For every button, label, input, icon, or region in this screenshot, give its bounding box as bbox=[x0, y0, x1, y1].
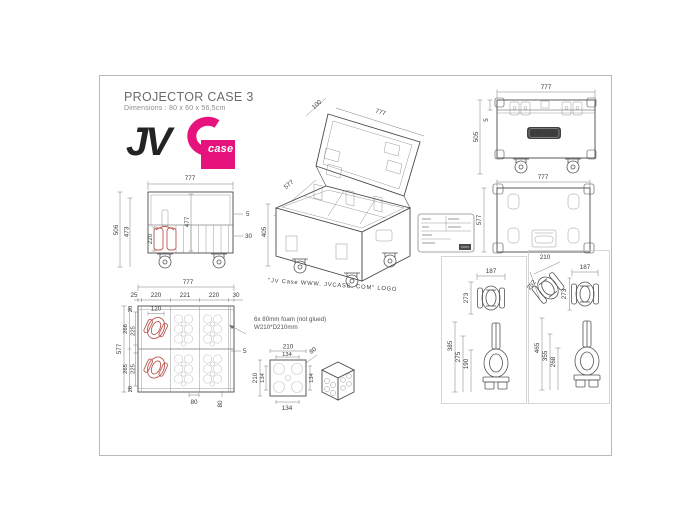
dim-detr-bh: 273 bbox=[561, 288, 568, 299]
dim-iso-width: 777 bbox=[374, 108, 387, 118]
dim-detl-s2: 190 bbox=[463, 358, 470, 369]
dim-detr-s1: 355 bbox=[542, 350, 549, 361]
dim-front-width: 777 bbox=[185, 175, 196, 182]
dim-foam-th: 80 bbox=[308, 346, 318, 356]
page: { "title": "PROJECTOR CASE 3", "subtitle… bbox=[0, 0, 700, 525]
closed-front-view: 777 BRITEQ 505 5 bbox=[468, 80, 613, 180]
dim-interior-c3: 220 bbox=[209, 292, 220, 299]
front-section-view: 777 506 473 477 220 5 30 bbox=[110, 170, 260, 280]
moving-head-side-icon bbox=[574, 321, 600, 387]
moving-head-side-icon bbox=[483, 323, 509, 389]
dim-detr-bw: 187 bbox=[580, 264, 591, 271]
dim-front-fixture: 220 bbox=[147, 233, 154, 244]
foam-note-line2: W210*D210mm bbox=[254, 324, 298, 331]
dim-interior-c2: 221 bbox=[180, 292, 191, 299]
dim-interior-b1: 80 bbox=[217, 400, 224, 408]
dim-interior-r3: 265 bbox=[123, 364, 129, 374]
dim-interior-c0: 25 bbox=[130, 292, 138, 299]
fixture-detail-right: 210 252 187 273 465 355 268 bbox=[528, 250, 610, 404]
case-label-detail bbox=[415, 208, 479, 258]
dim-interior-r5: 20 bbox=[128, 386, 134, 392]
case-top-view: 777 577 bbox=[468, 170, 613, 262]
foam-block-detail: 6x 80mm foam (not glued) W210*D210mm 210… bbox=[248, 312, 368, 418]
dim-interior-width: 777 bbox=[183, 279, 194, 286]
dim-front-h-outer: 506 bbox=[113, 224, 120, 235]
moving-head-top-tilted-icon bbox=[530, 270, 566, 306]
dim-foam-wi: 134 bbox=[282, 352, 292, 358]
fixture-detail-left: 187 273 385 275 190 bbox=[441, 256, 527, 404]
dim-foam-w: 210 bbox=[283, 344, 294, 351]
dim-front-strip: 30 bbox=[245, 233, 253, 240]
logo-case-box: case bbox=[201, 140, 235, 169]
dim-foam-bottom: 134 bbox=[282, 405, 293, 412]
dim-interior-depth: 577 bbox=[116, 343, 123, 354]
dim-detr-aw: 210 bbox=[540, 254, 551, 261]
dim-interior-r2: 225 bbox=[131, 326, 137, 336]
dim-interior-c4: 30 bbox=[232, 292, 240, 299]
dim-interior-r0: 20 bbox=[128, 306, 134, 312]
dim-detl-s1: 275 bbox=[455, 351, 462, 362]
case-body-drawing bbox=[276, 184, 410, 287]
logo-case-text: case bbox=[201, 140, 235, 155]
dim-front-h-inner: 473 bbox=[124, 226, 131, 237]
iso-caption: "JV Case WWW. JVCASE. COM" LOGO bbox=[268, 278, 398, 293]
dim-detl-s0: 385 bbox=[447, 340, 454, 351]
dim-interior-r1: 266 bbox=[123, 324, 129, 334]
foam-note-line1: 6x 80mm foam (not glued) bbox=[254, 316, 326, 323]
moving-head-top-icon bbox=[478, 286, 505, 310]
logo-jv-text: JV bbox=[126, 122, 169, 162]
dim-detl-w: 187 bbox=[486, 268, 497, 275]
dim-front-cavity: 477 bbox=[184, 216, 191, 227]
dim-foam-di: 134 bbox=[260, 372, 266, 382]
dim-foam-d: 210 bbox=[252, 372, 259, 383]
dim-iso-depth: 577 bbox=[283, 178, 296, 190]
dim-foam-side: 134 bbox=[309, 372, 315, 382]
dim-interior-cutout: 120 bbox=[151, 306, 162, 313]
dim-interior-wall: 5 bbox=[243, 348, 247, 355]
page-title: PROJECTOR CASE 3 bbox=[124, 90, 254, 104]
brand-plate: BRITEQ bbox=[527, 127, 561, 139]
dim-detr-s2: 268 bbox=[550, 356, 557, 367]
jv-case-logo: JV case bbox=[126, 116, 246, 174]
dim-detl-h: 273 bbox=[463, 292, 470, 303]
page-subtitle: Dimensions : 80 x 60 x 56,5cm bbox=[124, 105, 226, 112]
moving-head-top-icon bbox=[572, 282, 599, 306]
dim-closed-height: 505 bbox=[473, 131, 480, 142]
dim-iso-lid: 100 bbox=[311, 98, 324, 111]
dim-interior-b0: 80 bbox=[190, 399, 198, 406]
dim-iso-height: 405 bbox=[261, 226, 268, 237]
dim-closed-lid: 5 bbox=[483, 118, 490, 122]
brand-plate-text: BRITEQ bbox=[531, 130, 557, 137]
dim-interior-r4: 225 bbox=[131, 364, 137, 374]
dim-detr-s0: 465 bbox=[534, 342, 541, 353]
dim-front-lid: 5 bbox=[246, 211, 250, 218]
interior-top-view: 777 25 220 221 220 30 577 20 266 225 265… bbox=[110, 276, 270, 412]
caster-icon bbox=[157, 254, 173, 268]
dim-interior-c1: 220 bbox=[151, 292, 162, 299]
foam-block-3d bbox=[322, 362, 354, 400]
isometric-open-case-view: 100 777 577 405 "JV Case WWW. JVCASE. CO… bbox=[258, 84, 443, 294]
caster-icon bbox=[211, 254, 227, 268]
dim-closed-width: 777 bbox=[541, 84, 552, 91]
dim-top-width: 777 bbox=[538, 174, 549, 181]
